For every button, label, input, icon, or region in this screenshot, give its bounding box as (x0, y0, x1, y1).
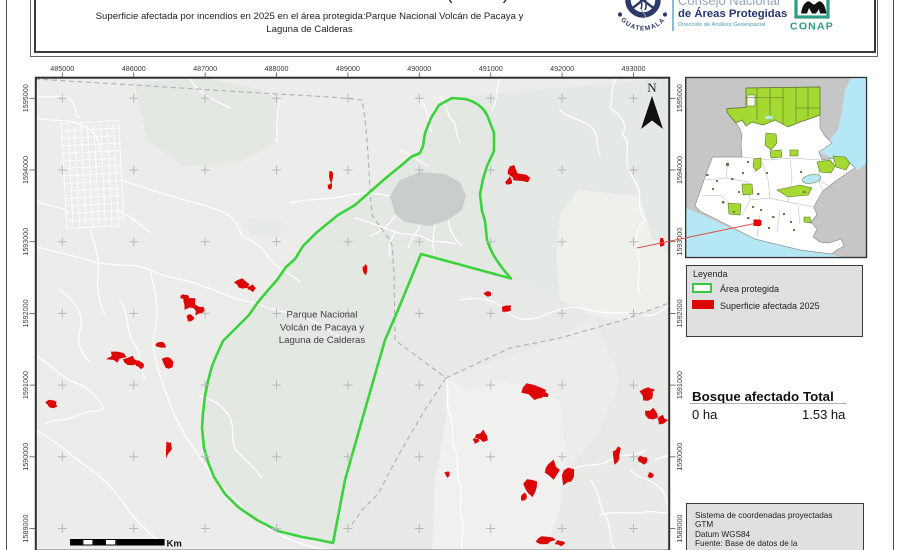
svg-text:N: N (647, 80, 657, 95)
svg-text:1590000: 1590000 (21, 443, 30, 471)
svg-text:487000: 487000 (193, 64, 217, 73)
svg-text:489000: 489000 (336, 64, 360, 73)
svg-text:488000: 488000 (265, 64, 289, 73)
svg-text:1594000: 1594000 (21, 156, 30, 184)
svg-text:Volcán de Pacaya y: Volcán de Pacaya y (280, 323, 364, 334)
svg-text:1589000: 1589000 (21, 515, 30, 543)
svg-text:492000: 492000 (550, 64, 574, 73)
svg-text:1591000: 1591000 (21, 371, 30, 399)
svg-text:1592000: 1592000 (21, 299, 30, 327)
svg-text:1589000: 1589000 (675, 515, 684, 543)
svg-text:493000: 493000 (622, 64, 646, 73)
svg-text:Parque Nacional: Parque Nacional (287, 310, 358, 321)
svg-text:491000: 491000 (479, 64, 503, 73)
svg-text:GUATEMALA: GUATEMALA (619, 16, 667, 32)
svg-text:1591000: 1591000 (675, 371, 684, 399)
svg-text:1593000: 1593000 (21, 228, 30, 256)
svg-text:490000: 490000 (407, 64, 431, 73)
svg-text:Km: Km (167, 539, 182, 550)
svg-text:1592000: 1592000 (675, 299, 684, 327)
svg-text:1595000: 1595000 (21, 84, 30, 112)
svg-text:486000: 486000 (122, 64, 146, 73)
svg-text:Laguna de Calderas: Laguna de Calderas (279, 335, 366, 346)
svg-text:CONAP: CONAP (790, 21, 834, 33)
svg-text:1590000: 1590000 (675, 443, 684, 471)
svg-text:485000: 485000 (50, 64, 74, 73)
